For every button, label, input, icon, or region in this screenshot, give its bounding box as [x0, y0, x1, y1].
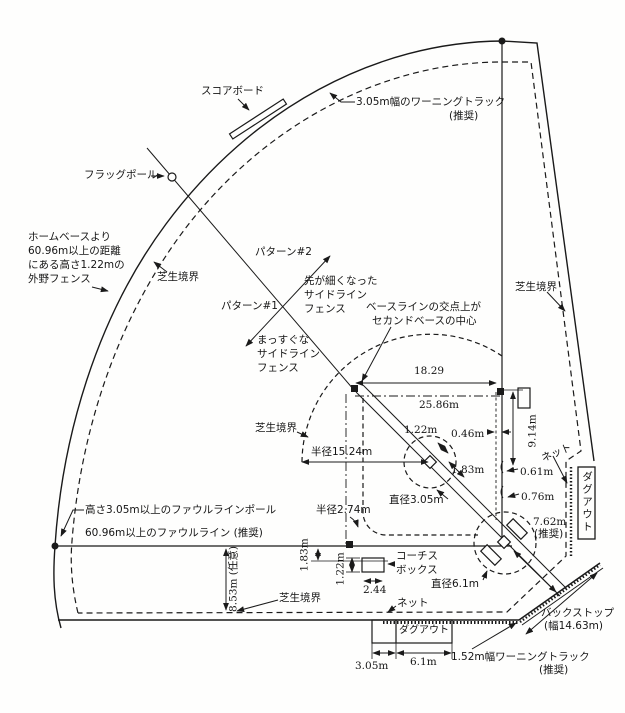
r-2-74-hook — [350, 517, 358, 527]
dim-r15-24-label: 半径15.24m — [311, 446, 372, 459]
scoreboard-icon — [230, 99, 287, 139]
dim-2-44-label: 2.44 — [363, 584, 386, 597]
outfield-note-line4: 外野フェンス — [28, 273, 91, 286]
dim-6-1-dugout-label: 6.1m — [410, 656, 437, 669]
dim-r2-74-label: 半径2.74m — [316, 504, 371, 517]
net-bottom-arrow — [388, 606, 396, 612]
dim-0-61-label: 0.61m — [520, 466, 553, 479]
second-center-arrow — [362, 327, 391, 381]
pattern2-label: パターン#2 — [255, 246, 312, 259]
first-base-coach-box — [518, 388, 530, 408]
warning-track-top-arrow — [330, 93, 355, 102]
tapered-fence-line1: 先が細くなった — [304, 275, 378, 288]
grass-left-label: 芝生境界 — [157, 271, 199, 284]
outfield-note-arrow — [92, 287, 108, 291]
grass-mid-label: 芝生境界 — [255, 422, 297, 435]
dia-6-1-hook — [483, 571, 487, 580]
flagpole-label: フラッグポール — [84, 169, 158, 182]
straight-fence-line3: フェンス — [257, 362, 299, 375]
dim-dia3-05-label: 直径3.05m — [389, 494, 444, 507]
scoreboard-label: スコアボード — [201, 85, 264, 98]
straight-fence-line2: サイドライン — [257, 348, 320, 361]
dim-1-22-mound — [438, 443, 448, 453]
field-objects — [52, 38, 596, 644]
warning-track-bottom-arrow — [472, 623, 516, 649]
tapered-fence-line2: サイドライン — [304, 289, 367, 302]
dim-dia6-1-label: 直径6.1m — [431, 578, 479, 591]
backstop-label: バックストップ — [541, 607, 614, 620]
third-base — [346, 541, 353, 548]
second-base — [351, 385, 358, 392]
dim-0-76 — [508, 494, 519, 497]
pattern1-label: パターン#1 — [221, 300, 278, 313]
pole-note-label: 高さ3.05m以上のファウルラインポール — [85, 504, 276, 517]
dim-0-61 — [507, 469, 518, 471]
outfield-note-line1: ホームベースより — [28, 231, 111, 244]
grass-bottom-arrow — [237, 600, 278, 611]
outfield-note-line3: にある高さ1.22mの — [28, 259, 125, 272]
dim-0-76-label: 0.76m — [521, 491, 554, 504]
dim-25-86-label: 25.86m — [419, 399, 459, 412]
outfield-note-line2: 60.96m以上の距離 — [28, 245, 121, 258]
dim-1-83-third-label: 1.83m — [299, 538, 312, 571]
warning-track-top-note: (推奨) — [449, 110, 478, 123]
first-base — [497, 388, 504, 395]
grass-bottom-label: 芝生境界 — [279, 592, 321, 605]
dim-0-46-label: 0.46m — [451, 428, 484, 441]
dim-7-62-note: (推奨) — [534, 528, 563, 541]
net-bottom-label: ネット — [397, 597, 429, 610]
dim-8-53-label: 8.53m (任意) — [228, 546, 241, 612]
dim-1-22-third-label: 1.22m — [335, 552, 348, 585]
right-foul-pole-dot — [499, 38, 506, 45]
tapered-fence-line3: フェンス — [304, 303, 346, 316]
second-center-line2: セカンドベースの中心 — [372, 315, 476, 328]
third-base-coach-box — [362, 558, 384, 572]
backstop-width-label: (幅14.63m) — [544, 620, 603, 633]
coach-box-label-line2: ボックス — [396, 564, 438, 577]
dugout-bottom-label: ダグアウト — [397, 624, 451, 637]
batter-box-right — [507, 519, 528, 540]
dim-1-83-mound-label: 1.83m — [451, 464, 484, 477]
flagpole-icon — [168, 173, 176, 181]
dim-9-14-label: 9.14m — [527, 414, 540, 447]
straight-fence-line1: まっすぐな — [257, 334, 309, 347]
infield-grass-arc — [302, 334, 502, 462]
batter-box-left — [481, 545, 502, 566]
dugout-right-label: ダグアウト — [580, 471, 594, 534]
dim-1-22-mound-label: 1.22m — [404, 424, 437, 437]
centerline-flagpole-second — [147, 148, 354, 390]
dim-3-05-dugout-label: 3.05m — [355, 660, 388, 673]
coach-box-label-line1: コーチス — [396, 550, 438, 563]
scoreboard-arrow — [238, 99, 249, 110]
left-foul-pole-dot — [52, 543, 59, 550]
second-center-line1: ベースラインの交点上が — [366, 301, 481, 314]
grass-right-label: 芝生境界 — [515, 281, 557, 294]
warning-track-top-label: 3.05m幅のワーニングトラック — [356, 96, 505, 109]
grass-mid-arrow — [297, 432, 308, 437]
dim-18-29-label: 18.29 — [414, 365, 444, 378]
foul-line-note-label: 60.96m以上のファウルライン (推奨) — [85, 527, 263, 540]
warning-track-bottom-note: (推奨) — [539, 664, 568, 677]
warning-track-bottom-label: 1.52m幅ワーニングトラック — [451, 651, 590, 664]
field-diagram: スコアボード 3.05m幅のワーニングトラック (推奨) フラッグポール ホーム… — [0, 0, 625, 713]
